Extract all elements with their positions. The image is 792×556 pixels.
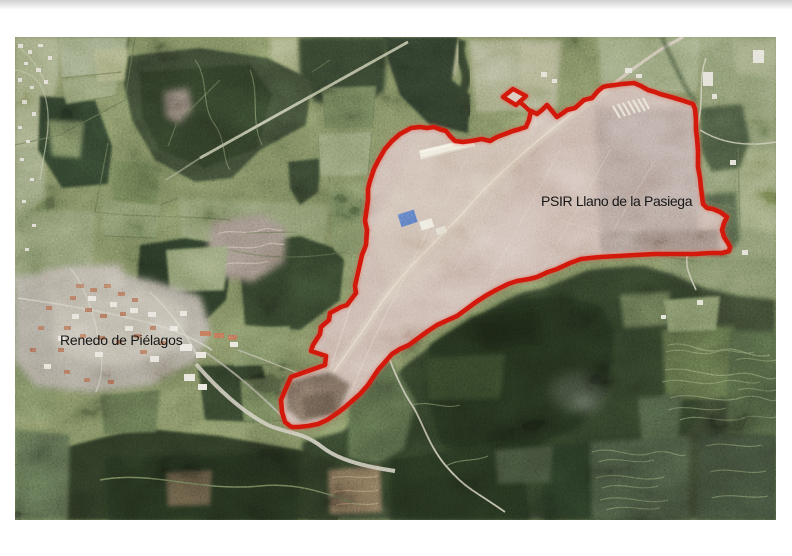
svg-text:PSIR Llano de la Pasiega: PSIR Llano de la Pasiega (541, 193, 693, 209)
svg-text:Renedo de Piélagos: Renedo de Piélagos (60, 332, 183, 348)
